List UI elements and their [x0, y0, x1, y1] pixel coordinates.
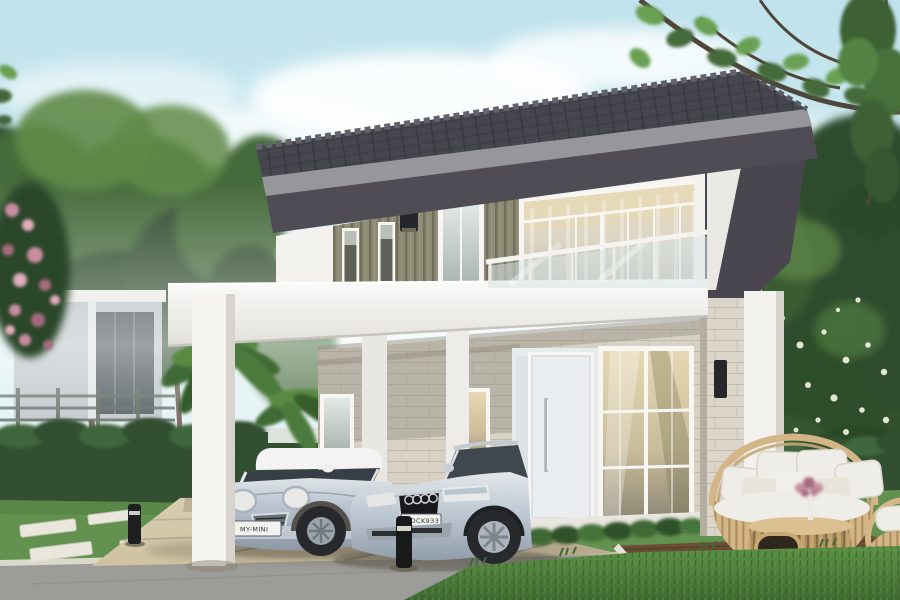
- balcony-door: [438, 197, 484, 292]
- audi-mirror: [442, 464, 454, 473]
- upper-slit-window-b: [378, 222, 395, 284]
- front-door: [532, 356, 590, 518]
- mini-mirror: [322, 464, 334, 473]
- small-window-a: [320, 394, 354, 456]
- upper-slit-window-a: [342, 228, 359, 290]
- carport-column-front-left: [186, 294, 238, 572]
- mini-plate: MY-MINI: [233, 521, 281, 536]
- house-exterior-photo: MY-MINI OOCK933: [0, 0, 900, 600]
- pillar-sconce: [714, 360, 727, 398]
- svg-text:MY-MINI: MY-MINI: [240, 526, 268, 534]
- scene-canvas: MY-MINI OOCK933: [0, 0, 900, 600]
- mini-roof: [256, 448, 382, 470]
- ground-window: [598, 346, 694, 522]
